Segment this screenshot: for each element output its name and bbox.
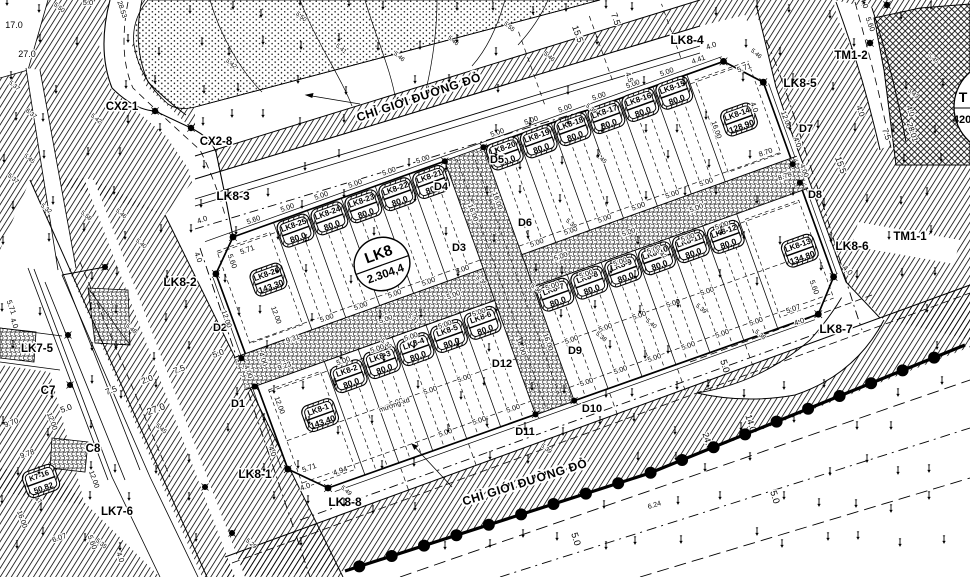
svg-text:LK8-7: LK8-7	[819, 322, 853, 336]
svg-text:D10: D10	[582, 403, 602, 415]
svg-text:D4: D4	[434, 181, 449, 193]
svg-text:D9: D9	[568, 345, 582, 357]
svg-text:LK8-5: LK8-5	[783, 76, 817, 90]
svg-text:C8: C8	[86, 443, 101, 455]
svg-text:CX2-8: CX2-8	[200, 136, 233, 148]
svg-text:D12: D12	[492, 358, 512, 370]
svg-text:D8: D8	[808, 189, 822, 201]
svg-text:T: T	[959, 89, 968, 105]
svg-text:LK7-5: LK7-5	[21, 343, 54, 355]
svg-text:TM1-1: TM1-1	[893, 231, 927, 243]
svg-text:LK8-4: LK8-4	[670, 33, 704, 47]
svg-text:5.0: 5.0	[83, 0, 93, 7]
svg-text:LK8-3: LK8-3	[216, 189, 250, 203]
svg-text:C7: C7	[41, 385, 56, 397]
svg-text:420: 420	[953, 114, 970, 126]
svg-text:D1: D1	[231, 398, 245, 410]
svg-text:LK8-1: LK8-1	[238, 467, 272, 481]
svg-text:D3: D3	[452, 242, 466, 254]
svg-text:D7: D7	[799, 123, 813, 135]
svg-text:D5: D5	[490, 154, 504, 166]
svg-text:D6: D6	[518, 217, 532, 229]
svg-text:CX2-1: CX2-1	[106, 101, 139, 113]
svg-text:LK8-8: LK8-8	[328, 495, 362, 509]
svg-text:LK8-2: LK8-2	[163, 275, 197, 289]
svg-text:LK8-6: LK8-6	[835, 239, 869, 253]
svg-text:LK7-6: LK7-6	[101, 506, 133, 518]
svg-text:27.0: 27.0	[18, 49, 36, 59]
svg-text:17.0: 17.0	[5, 20, 23, 30]
svg-text:TM1-2: TM1-2	[834, 50, 867, 62]
